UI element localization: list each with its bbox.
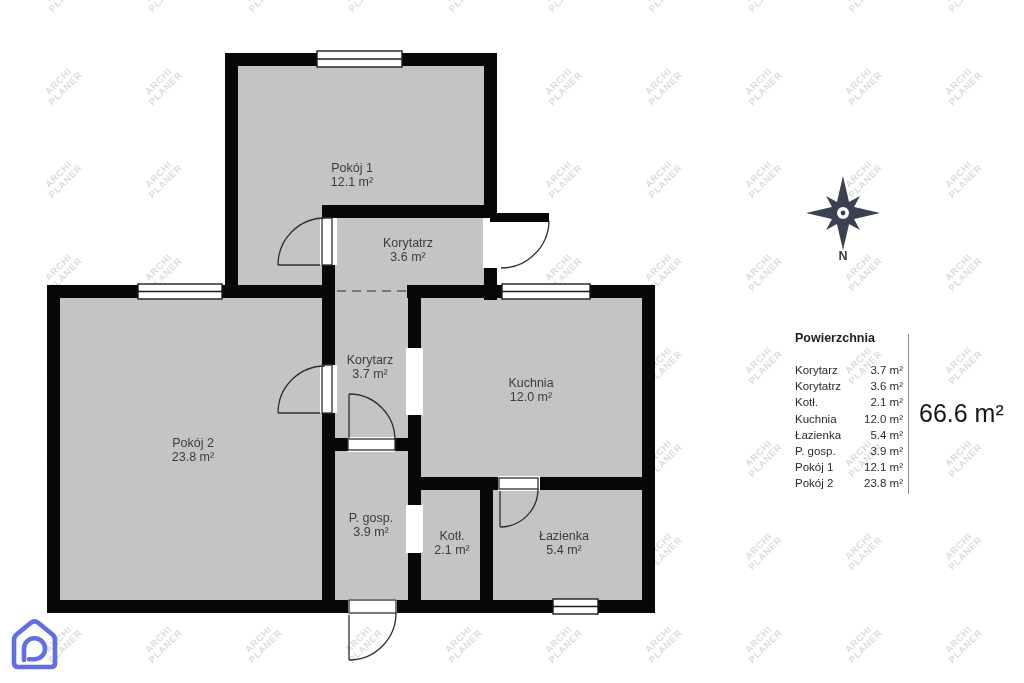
compass-north-label: N xyxy=(838,249,847,263)
legend-room-value: 3.7 m² xyxy=(870,362,903,378)
room-name: Korytarz xyxy=(347,353,394,367)
legend-room-label: Korytatrz xyxy=(795,378,841,394)
legend-room-label: Kotł. xyxy=(795,394,818,410)
legend-room-value: 3.9 m² xyxy=(870,443,903,459)
door-exterior-pgosp xyxy=(349,600,396,660)
room-area: 12.0 m² xyxy=(510,390,552,404)
window-lazienka xyxy=(553,599,598,614)
legend-room-value: 3.6 m² xyxy=(870,378,903,394)
room-label-korytatrz: Korytatrz 3.6 m² xyxy=(383,236,433,264)
legend-title: Powierzchnia xyxy=(795,331,903,345)
room-name: Kotł. xyxy=(439,529,464,543)
window-kuchnia xyxy=(502,284,590,299)
legend-room-value: 12.1 m² xyxy=(864,459,903,475)
wall-segment xyxy=(408,285,421,613)
opening xyxy=(483,218,500,268)
wall-segment xyxy=(47,285,60,613)
legend-row: Korytarz 3.7 m² xyxy=(795,362,903,378)
compass-hub-dot xyxy=(841,211,846,216)
wall-segment xyxy=(642,285,655,613)
legend-room-value: 12.0 m² xyxy=(864,411,903,427)
legend-row: Korytatrz 3.6 m² xyxy=(795,378,903,394)
room-area: 23.8 m² xyxy=(172,450,214,464)
window-pokoj-2 xyxy=(138,284,222,299)
legend-row: Pokój 1 12.1 m² xyxy=(795,459,903,475)
legend-row: P. gosp. 3.9 m² xyxy=(795,443,903,459)
room-label-pokoj-1: Pokój 1 12.1 m² xyxy=(331,161,373,189)
legend-row: Łazienka 5.4 m² xyxy=(795,427,903,443)
legend-row: Pokój 2 23.8 m² xyxy=(795,475,903,491)
legend-room-label: Korytarz xyxy=(795,362,838,378)
room-area: 2.1 m² xyxy=(434,543,469,557)
floorplan-page: ARCHIPLANERARCHIPLANERARCHIPLANERARCHIPL… xyxy=(0,0,1024,683)
legend-room-label: Kuchnia xyxy=(795,411,837,427)
room-area: 3.9 m² xyxy=(353,525,388,539)
room-label-lazienka: Łazienka 5.4 m² xyxy=(539,529,589,557)
room-name: Kuchnia xyxy=(508,376,553,390)
wall-segment xyxy=(480,483,493,613)
legend-room-value: 2.1 m² xyxy=(870,394,903,410)
room-label-korytarz: Korytarz 3.7 m² xyxy=(347,353,394,381)
room-name: Pokój 2 xyxy=(172,436,214,450)
wall-segment xyxy=(322,205,497,218)
legend-room-label: P. gosp. xyxy=(795,443,836,459)
legend-room-label: Pokój 1 xyxy=(795,459,833,475)
window-pokoj-1 xyxy=(317,51,402,67)
room-area: 3.6 m² xyxy=(390,250,425,264)
room-label-kuchnia: Kuchnia 12.0 m² xyxy=(508,376,553,404)
room-name: Korytatrz xyxy=(383,236,433,250)
legend-row: Kuchnia 12.0 m² xyxy=(795,411,903,427)
compass-rose-icon: N xyxy=(806,176,880,263)
archiplaner-logo-icon xyxy=(14,621,55,667)
room-area: 12.1 m² xyxy=(331,175,373,189)
logo-loop xyxy=(24,638,45,660)
total-area: 66.6 m² xyxy=(919,399,1019,428)
room-label-kotl: Kotł. 2.1 m² xyxy=(434,529,469,557)
legend-room-value: 5.4 m² xyxy=(870,427,903,443)
room-name: P. gosp. xyxy=(349,511,393,525)
legend-room-label: Łazienka xyxy=(795,427,841,443)
wall-segment xyxy=(225,53,238,298)
legend-room-value: 23.8 m² xyxy=(864,475,903,491)
area-legend: Powierzchnia Korytarz 3.7 m² Korytatrz 3… xyxy=(795,331,903,492)
opening xyxy=(406,505,423,553)
room-name: Pokój 1 xyxy=(331,161,373,175)
room-name: Łazienka xyxy=(539,529,589,543)
room-area: 3.7 m² xyxy=(352,367,387,381)
room-area: 5.4 m² xyxy=(546,543,581,557)
legend-room-label: Pokój 2 xyxy=(795,475,833,491)
room-label-p-gosp: P. gosp. 3.9 m² xyxy=(349,511,393,539)
legend-row: Kotł. 2.1 m² xyxy=(795,394,903,410)
legend-divider xyxy=(908,334,909,494)
opening xyxy=(406,348,423,415)
room-label-pokoj-2: Pokój 2 23.8 m² xyxy=(172,436,214,464)
